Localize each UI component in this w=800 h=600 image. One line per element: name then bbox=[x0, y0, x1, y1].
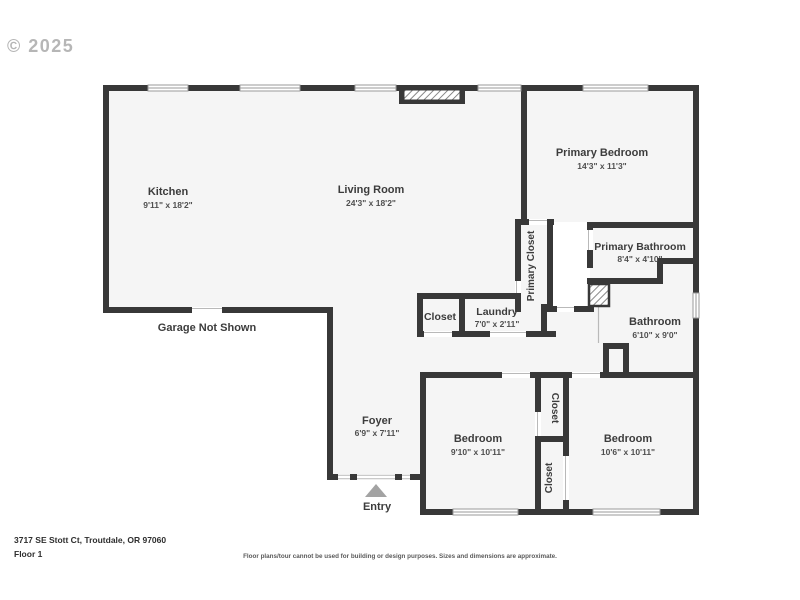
bathroom-label: Bathroom bbox=[629, 316, 681, 328]
floor-plan-drawing: Kitchen 9'11" x 18'2" Living Room 24'3" … bbox=[0, 0, 800, 600]
bedroom-right-dims: 10'6" x 10'11" bbox=[601, 447, 655, 457]
laundry-label: Laundry bbox=[476, 306, 518, 318]
closet-top-label: Closet bbox=[549, 393, 560, 424]
bathroom-dims: 6'10" x 9'0" bbox=[632, 330, 677, 340]
address-text: 3717 SE Stott Ct, Troutdale, OR 97060 bbox=[14, 535, 166, 545]
kitchen-label: Kitchen bbox=[148, 186, 189, 198]
hall-closet-label: Closet bbox=[424, 311, 457, 323]
garage-note: Garage Not Shown bbox=[158, 322, 257, 334]
bedroom-left-label: Bedroom bbox=[454, 433, 503, 445]
foyer-label: Foyer bbox=[362, 415, 393, 427]
closet-bottom-label: Closet bbox=[544, 462, 555, 493]
bedroom-left-dims: 9'10" x 10'11" bbox=[451, 447, 505, 457]
entry-door-opening bbox=[338, 474, 410, 480]
primary-bedroom-dims: 14'3" x 11'3" bbox=[577, 161, 626, 171]
laundry-dims: 7'0" x 2'11" bbox=[475, 319, 520, 329]
primary-closet-label: Primary Closet bbox=[526, 230, 537, 301]
living-room-dims: 24'3" x 18'2" bbox=[346, 198, 396, 208]
living-room-label: Living Room bbox=[338, 184, 405, 196]
copyright-watermark: © 2025 bbox=[7, 36, 74, 56]
foyer-dims: 6'9" x 7'11" bbox=[355, 428, 400, 438]
entry-arrow-icon bbox=[365, 484, 387, 497]
bedroom-right-label: Bedroom bbox=[604, 433, 653, 445]
shower-hatch bbox=[589, 284, 609, 306]
disclaimer-text: Floor plans/tour cannot be used for buil… bbox=[243, 553, 557, 560]
floor-number: Floor 1 bbox=[14, 549, 43, 559]
fireplace bbox=[399, 85, 465, 104]
entry-label: Entry bbox=[363, 501, 392, 513]
primary-bathroom-dims: 8'4" x 4'10" bbox=[617, 254, 662, 264]
kitchen-dims: 9'11" x 18'2" bbox=[143, 200, 192, 210]
primary-bedroom-label: Primary Bedroom bbox=[556, 147, 649, 159]
floor-plan-page: Kitchen 9'11" x 18'2" Living Room 24'3" … bbox=[0, 0, 800, 600]
primary-bathroom-label: Primary Bathroom bbox=[594, 241, 686, 253]
